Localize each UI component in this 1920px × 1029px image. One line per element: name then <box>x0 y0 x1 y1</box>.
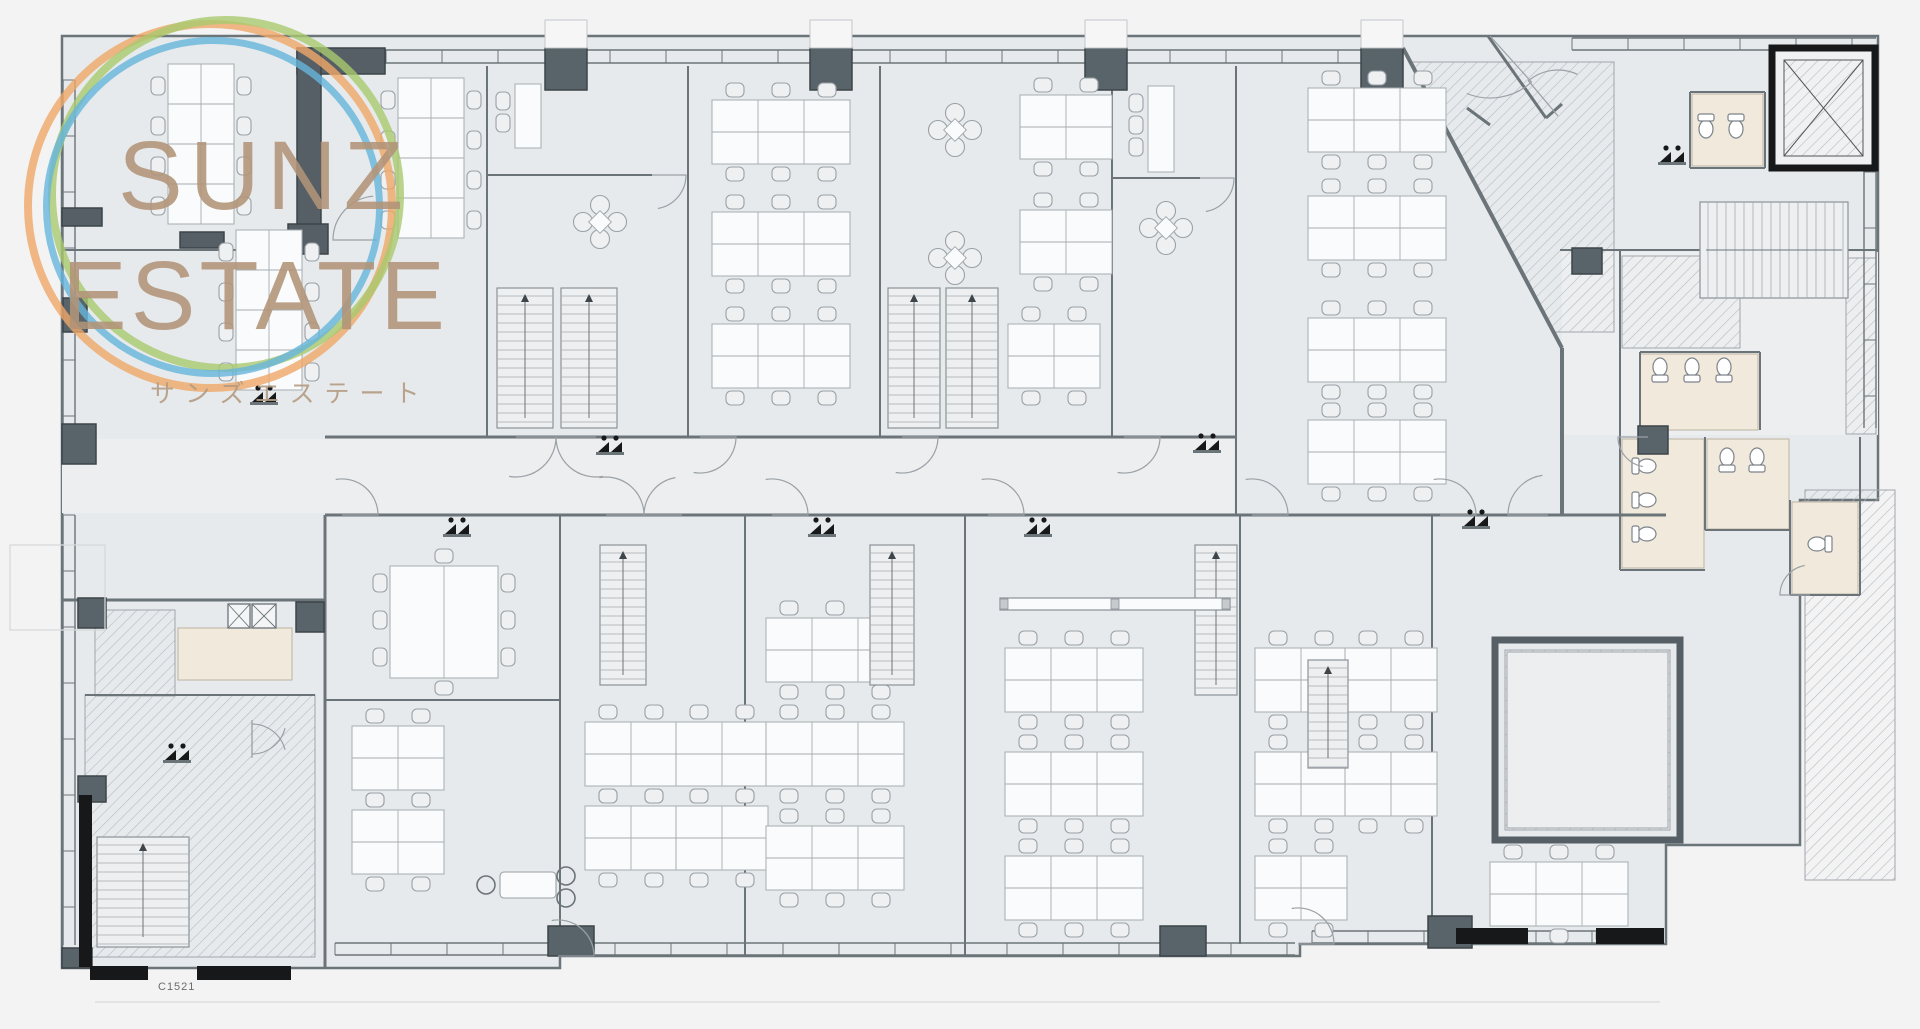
chair-icon <box>1068 391 1086 405</box>
chair-icon <box>1550 929 1568 943</box>
column <box>1572 248 1602 274</box>
chair-icon <box>1111 923 1129 937</box>
chair-icon <box>780 789 798 803</box>
chair-icon <box>1414 155 1432 169</box>
chair-icon <box>1111 735 1129 749</box>
chair-icon <box>1019 631 1037 645</box>
restroom-floor <box>178 628 292 680</box>
chair-icon <box>1368 403 1386 417</box>
chair-icon <box>412 877 430 891</box>
chair-icon <box>373 574 387 592</box>
chair-icon <box>501 648 515 666</box>
chair-icon <box>1111 631 1129 645</box>
chair-icon <box>381 211 395 229</box>
chair-icon <box>1080 162 1098 176</box>
chair-icon <box>1405 735 1423 749</box>
chair-icon <box>1022 307 1040 321</box>
chair-icon <box>1129 138 1143 156</box>
structural-wall <box>62 208 102 226</box>
chair-icon <box>1111 839 1129 853</box>
chair-icon <box>780 601 798 615</box>
toilet-icon <box>1632 458 1656 474</box>
column <box>63 298 87 332</box>
structural-wall <box>180 232 224 248</box>
chair-icon <box>1068 307 1086 321</box>
chair-icon <box>151 197 165 215</box>
chair-icon <box>1034 162 1052 176</box>
chair-icon <box>1315 819 1333 833</box>
toilet-icon <box>1684 358 1700 382</box>
chair-icon <box>599 873 617 887</box>
chair-icon <box>1322 487 1340 501</box>
chair-icon <box>219 323 233 341</box>
toilet-icon <box>1632 526 1656 542</box>
chair-icon <box>237 197 251 215</box>
chair-icon <box>726 195 744 209</box>
meeting-room-thick <box>1495 640 1680 840</box>
staircase <box>561 288 617 428</box>
chair-icon <box>1080 193 1098 207</box>
chair-icon <box>496 92 510 110</box>
chair-icon <box>1065 735 1083 749</box>
chair-icon <box>467 211 481 229</box>
chair-icon <box>826 789 844 803</box>
chair-icon <box>1315 631 1333 645</box>
chair-icon <box>1368 487 1386 501</box>
chair-icon <box>645 873 663 887</box>
chair-icon <box>1019 819 1037 833</box>
chair-icon <box>1368 263 1386 277</box>
chair-icon <box>151 117 165 135</box>
chair-icon <box>366 709 384 723</box>
chair-icon <box>1322 155 1340 169</box>
chair-icon <box>1269 923 1287 937</box>
chair-icon <box>467 171 481 189</box>
chair-icon <box>1322 385 1340 399</box>
chair-icon <box>645 789 663 803</box>
chair-icon <box>1080 277 1098 291</box>
chair-icon <box>726 391 744 405</box>
chair-icon <box>1019 735 1037 749</box>
chair-icon <box>1322 179 1340 193</box>
column <box>1638 426 1668 454</box>
chair-icon <box>736 789 754 803</box>
hatched-area <box>95 610 175 696</box>
floorplan-drawing <box>0 0 1920 1029</box>
chair-icon <box>872 789 890 803</box>
chair-icon <box>1368 385 1386 399</box>
chair-icon <box>1414 385 1432 399</box>
chair-icon <box>435 681 453 695</box>
chair-icon <box>1269 715 1287 729</box>
chair-icon <box>412 793 430 807</box>
toilet-icon <box>1728 114 1744 138</box>
chair-icon <box>599 705 617 719</box>
chair-icon <box>690 789 708 803</box>
chair-icon <box>599 789 617 803</box>
chair-icon <box>1414 71 1432 85</box>
chair-icon <box>412 709 430 723</box>
conference-table <box>373 549 515 695</box>
chair-icon <box>219 243 233 261</box>
chair-icon <box>1596 845 1614 859</box>
staircase <box>1700 202 1848 298</box>
column <box>545 48 587 90</box>
toilet-icon <box>1749 448 1765 472</box>
chair-icon <box>726 307 744 321</box>
chair-icon <box>1034 193 1052 207</box>
chair-icon <box>826 601 844 615</box>
chair-icon <box>1269 839 1287 853</box>
chair-icon <box>826 705 844 719</box>
chair-icon <box>1504 845 1522 859</box>
chair-icon <box>690 873 708 887</box>
chair-icon <box>1034 78 1052 92</box>
chair-icon <box>366 793 384 807</box>
chair-icon <box>872 893 890 907</box>
chair-icon <box>381 171 395 189</box>
column <box>78 598 106 628</box>
chair-icon <box>237 77 251 95</box>
chair-icon <box>826 685 844 699</box>
chair-icon <box>1405 819 1423 833</box>
chair-icon <box>872 809 890 823</box>
chair-icon <box>366 877 384 891</box>
chair-icon <box>151 77 165 95</box>
chair-icon <box>818 167 836 181</box>
black-wall <box>197 966 291 980</box>
shaft <box>228 604 250 628</box>
staircase <box>497 288 553 428</box>
chair-icon <box>826 809 844 823</box>
chair-icon <box>305 243 319 261</box>
chair-icon <box>1022 391 1040 405</box>
column <box>1160 926 1206 956</box>
chair-icon <box>1019 715 1037 729</box>
chair-icon <box>1322 301 1340 315</box>
chair-icon <box>826 893 844 907</box>
chair-icon <box>1065 631 1083 645</box>
chair-icon <box>1359 819 1377 833</box>
chair-icon <box>1065 923 1083 937</box>
chair-icon <box>305 323 319 341</box>
chair-icon <box>1111 819 1129 833</box>
chair-icon <box>373 648 387 666</box>
chair-icon <box>1359 715 1377 729</box>
chair-icon <box>1414 487 1432 501</box>
chair-icon <box>1269 819 1287 833</box>
chair-icon <box>305 283 319 301</box>
chair-icon <box>780 893 798 907</box>
staircase <box>1195 545 1237 695</box>
chair-icon <box>736 873 754 887</box>
chair-icon <box>381 131 395 149</box>
staircase <box>888 288 940 428</box>
chair-icon <box>780 705 798 719</box>
chair-icon <box>872 705 890 719</box>
chair-icon <box>1359 631 1377 645</box>
chair-icon <box>1405 631 1423 645</box>
toilet-icon <box>1652 358 1668 382</box>
chair-icon <box>1034 277 1052 291</box>
elevator <box>1772 48 1875 168</box>
chair-icon <box>237 117 251 135</box>
chair-icon <box>690 705 708 719</box>
chair-icon <box>780 809 798 823</box>
staircase <box>600 545 646 685</box>
toilet-icon <box>1632 492 1656 508</box>
staircase <box>946 288 998 428</box>
chair-icon <box>501 574 515 592</box>
chair-icon <box>818 279 836 293</box>
chair-icon <box>219 363 233 381</box>
black-wall <box>90 966 148 980</box>
chair-icon <box>772 195 790 209</box>
staircase <box>97 837 189 947</box>
chair-icon <box>1414 179 1432 193</box>
chair-icon <box>1065 839 1083 853</box>
chair-icon <box>818 307 836 321</box>
chair-icon <box>1315 923 1333 937</box>
chair-icon <box>1065 715 1083 729</box>
chair-icon <box>1080 78 1098 92</box>
black-wall <box>1596 928 1664 944</box>
staircase <box>1308 660 1348 768</box>
chair-icon <box>772 167 790 181</box>
black-wall <box>1456 928 1528 944</box>
chair-icon <box>1414 263 1432 277</box>
chair-icon <box>1322 71 1340 85</box>
chair-icon <box>435 549 453 563</box>
chair-icon <box>151 157 165 175</box>
chair-icon <box>1322 403 1340 417</box>
chair-icon <box>818 391 836 405</box>
chair-icon <box>1414 301 1432 315</box>
structural-wall <box>297 48 321 228</box>
chair-icon <box>305 363 319 381</box>
chair-icon <box>872 685 890 699</box>
chair-icon <box>496 114 510 132</box>
chair-icon <box>1065 819 1083 833</box>
column <box>548 926 594 956</box>
chair-icon <box>736 705 754 719</box>
staircase <box>870 545 914 685</box>
chair-icon <box>1368 179 1386 193</box>
chair-icon <box>1111 715 1129 729</box>
floorplan-page: SUNZ ESTATE サンズエステート C1521 <box>0 0 1920 1029</box>
chair-icon <box>381 91 395 109</box>
chair-icon <box>726 167 744 181</box>
chair-icon <box>1359 735 1377 749</box>
chair-icon <box>219 283 233 301</box>
chair-icon <box>1368 71 1386 85</box>
chair-icon <box>1550 845 1568 859</box>
chair-icon <box>1129 94 1143 112</box>
chair-icon <box>818 83 836 97</box>
restroom-floor <box>1707 439 1789 529</box>
chair-icon <box>1405 715 1423 729</box>
chair-icon <box>1414 403 1432 417</box>
chair-icon <box>772 391 790 405</box>
shaft <box>252 604 276 628</box>
chair-icon <box>501 611 515 629</box>
chair-icon <box>467 131 481 149</box>
chair-icon <box>1129 116 1143 134</box>
chair-icon <box>1019 839 1037 853</box>
toilet-icon <box>1716 358 1732 382</box>
high-table <box>1000 598 1230 610</box>
chair-icon <box>772 307 790 321</box>
chair-icon <box>1322 263 1340 277</box>
chair-icon <box>1269 735 1287 749</box>
chair-icon <box>726 83 744 97</box>
chair-icon <box>237 157 251 175</box>
column <box>296 602 324 632</box>
chair-icon <box>726 279 744 293</box>
chair-icon <box>645 705 663 719</box>
chair-icon <box>1019 923 1037 937</box>
chair-icon <box>1368 155 1386 169</box>
chair-icon <box>1315 839 1333 853</box>
chair-icon <box>772 279 790 293</box>
black-wall <box>79 795 92 967</box>
toilet-icon <box>1808 536 1832 552</box>
chair-icon <box>373 611 387 629</box>
chair-icon <box>1269 631 1287 645</box>
chair-icon <box>780 685 798 699</box>
chair-icon <box>818 195 836 209</box>
toilet-icon <box>1719 448 1735 472</box>
toilet-icon <box>1698 114 1714 138</box>
chair-icon <box>772 83 790 97</box>
column <box>62 424 96 464</box>
chair-icon <box>1368 301 1386 315</box>
chair-icon <box>467 91 481 109</box>
